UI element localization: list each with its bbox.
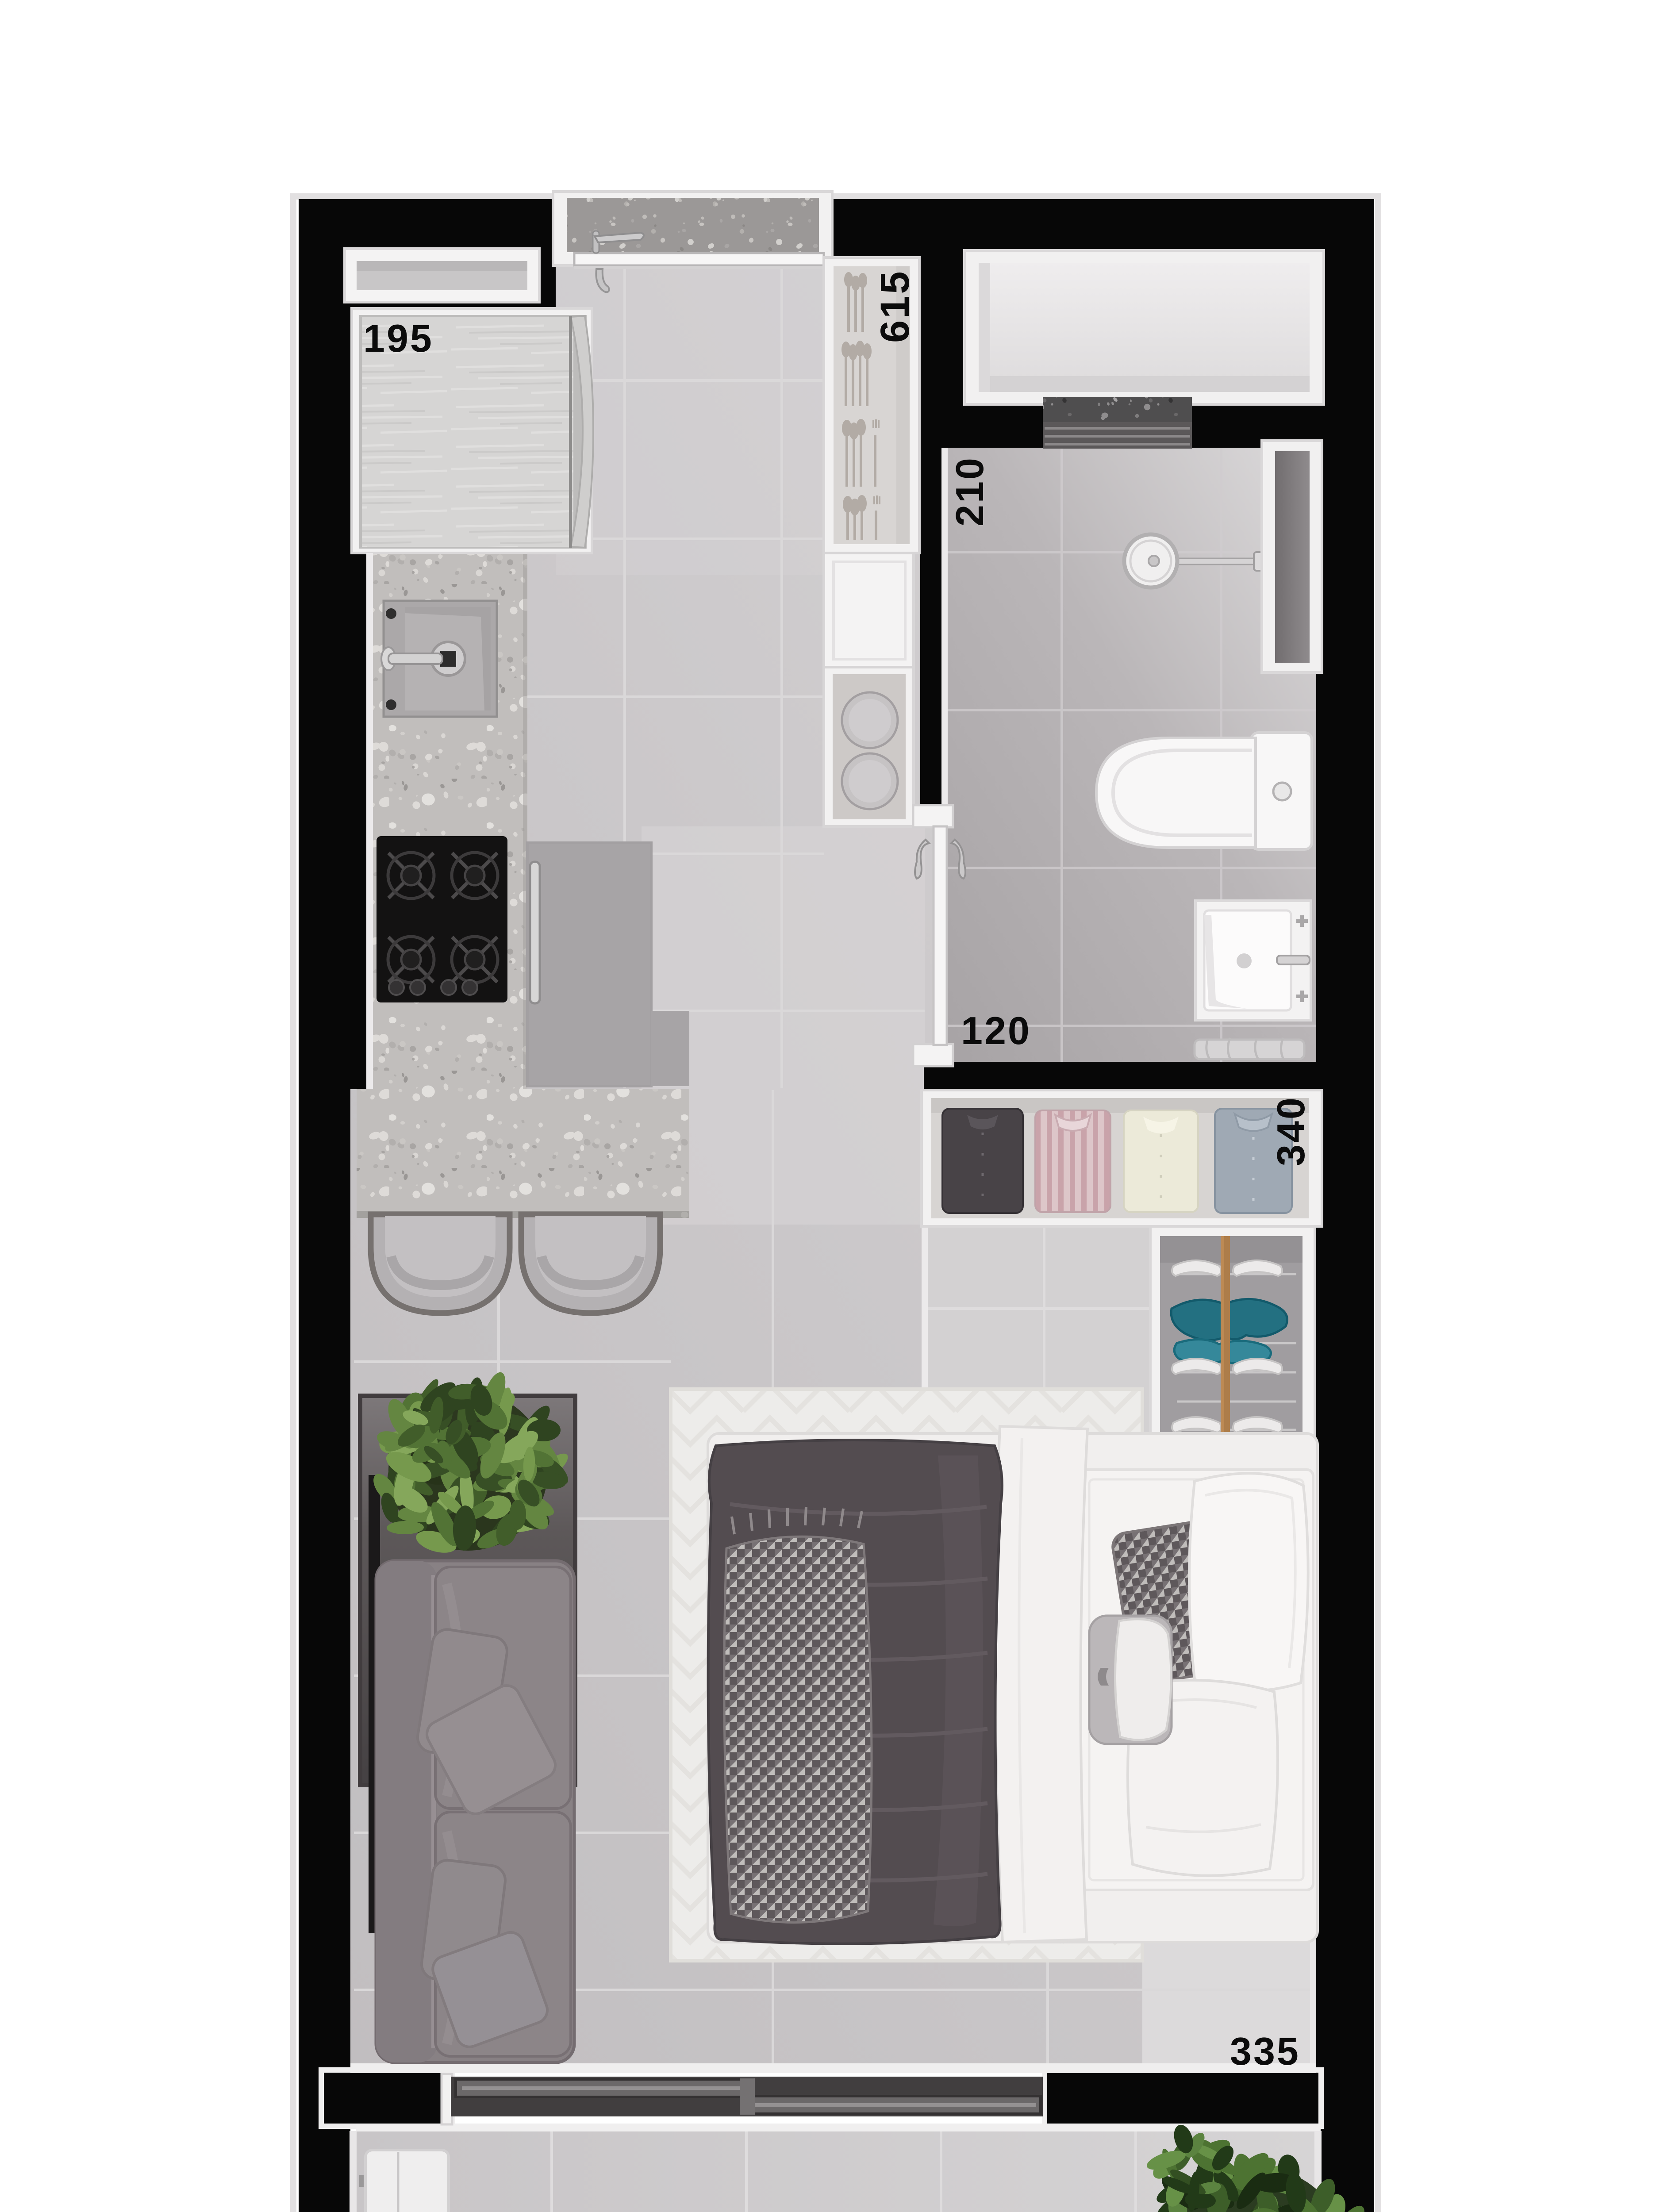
svg-text:340: 340 bbox=[1269, 1096, 1313, 1166]
svg-text:335: 335 bbox=[1230, 2029, 1300, 2073]
svg-text:195: 195 bbox=[363, 316, 434, 360]
svg-text:210: 210 bbox=[948, 456, 991, 526]
svg-text:120: 120 bbox=[961, 1009, 1031, 1052]
svg-text:615: 615 bbox=[872, 270, 918, 343]
